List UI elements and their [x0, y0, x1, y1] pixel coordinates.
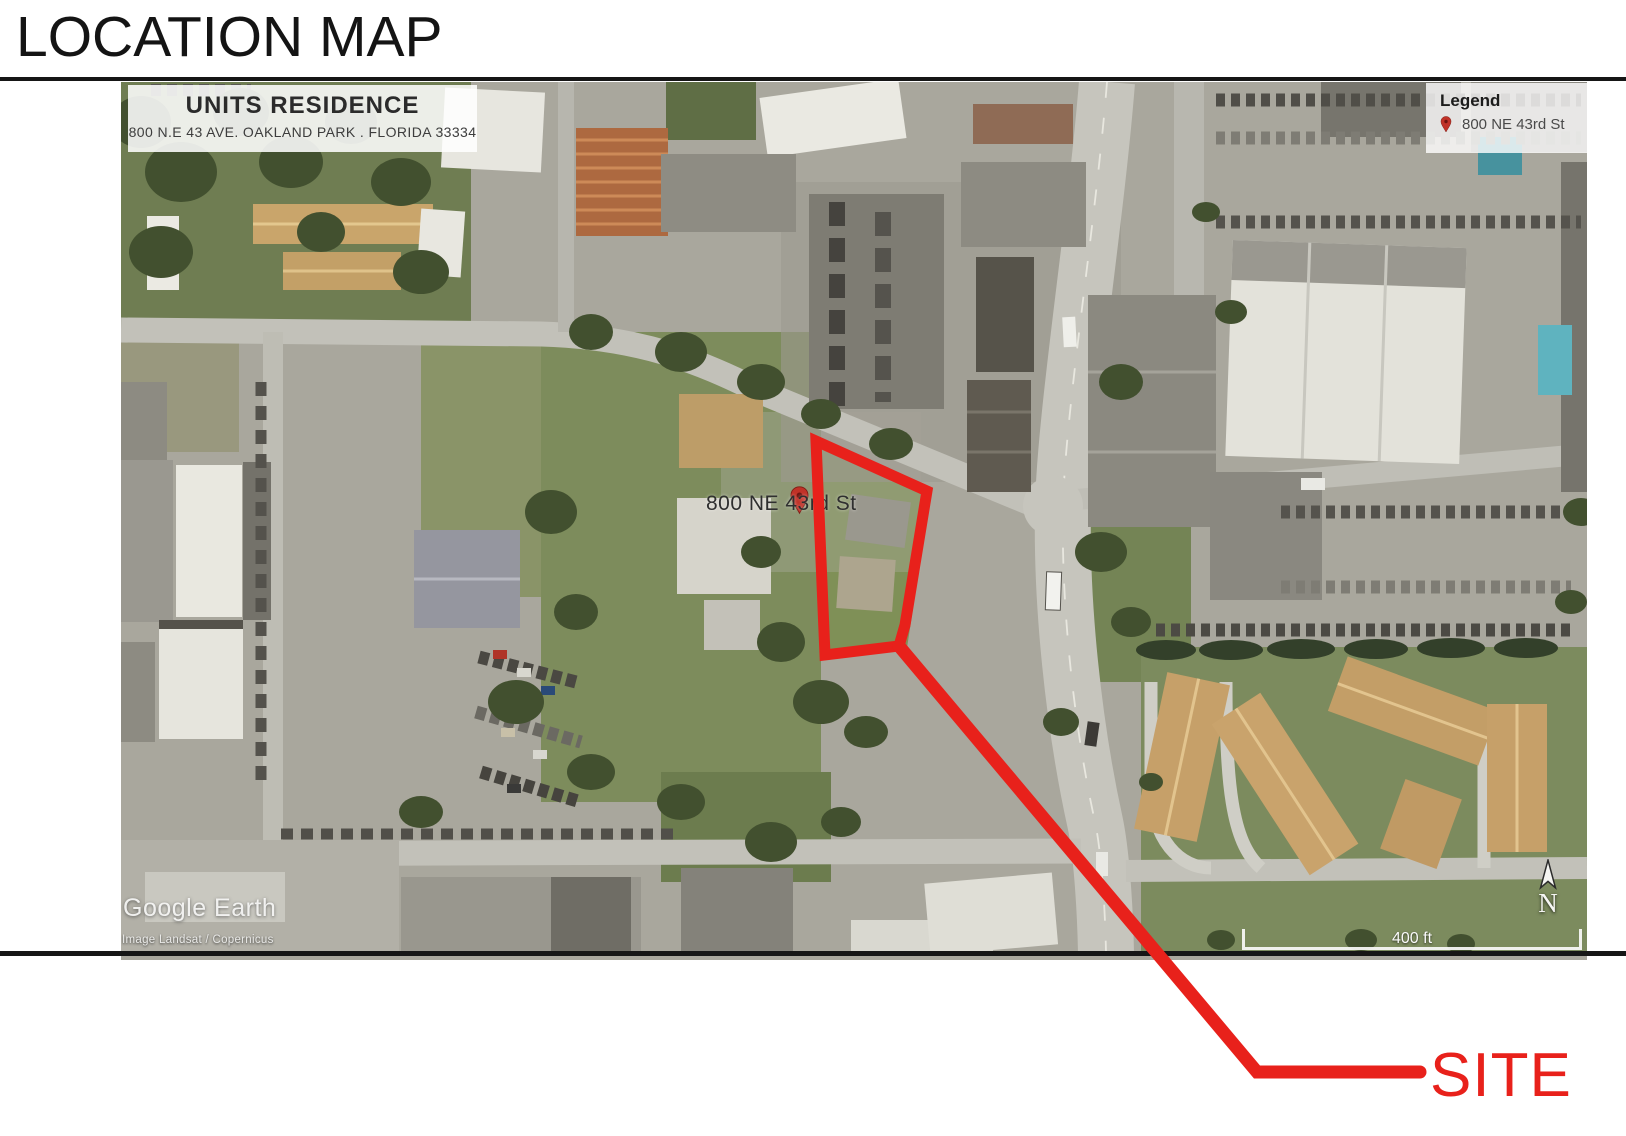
north-label: N	[1531, 891, 1565, 915]
scale-bar: 400 ft	[1242, 929, 1582, 950]
satellite-imagery	[121, 82, 1587, 953]
location-map-page: LOCATION MAP	[0, 0, 1626, 1136]
map-title-block: UNITS RESIDENCE 800 N.E 43 AVE. OAKLAND …	[128, 85, 477, 152]
google-earth-watermark: Google Earth	[123, 894, 276, 923]
page-title: LOCATION MAP	[16, 4, 443, 70]
bottom-divider	[0, 951, 1626, 956]
site-label: SITE	[1430, 1040, 1572, 1111]
project-address: 800 N.E 43 AVE. OAKLAND PARK . FLORIDA 3…	[128, 124, 477, 140]
scale-label: 400 ft	[1392, 930, 1432, 948]
satellite-map: UNITS RESIDENCE 800 N.E 43 AVE. OAKLAND …	[121, 82, 1587, 960]
project-title: UNITS RESIDENCE	[128, 92, 477, 120]
legend-title: Legend	[1440, 91, 1587, 111]
north-arrow-icon	[1535, 859, 1561, 891]
street-label: 800 NE 43rd St	[706, 492, 857, 516]
legend-item-label: 800 NE 43rd St	[1462, 116, 1565, 133]
map-pin-icon	[1440, 116, 1452, 133]
imagery-attribution: Image Landsat / Copernicus	[122, 934, 274, 946]
map-legend: Legend 800 NE 43rd St	[1426, 83, 1587, 153]
legend-item: 800 NE 43rd St	[1440, 116, 1587, 133]
top-divider	[0, 77, 1626, 81]
north-arrow: N	[1531, 859, 1565, 915]
